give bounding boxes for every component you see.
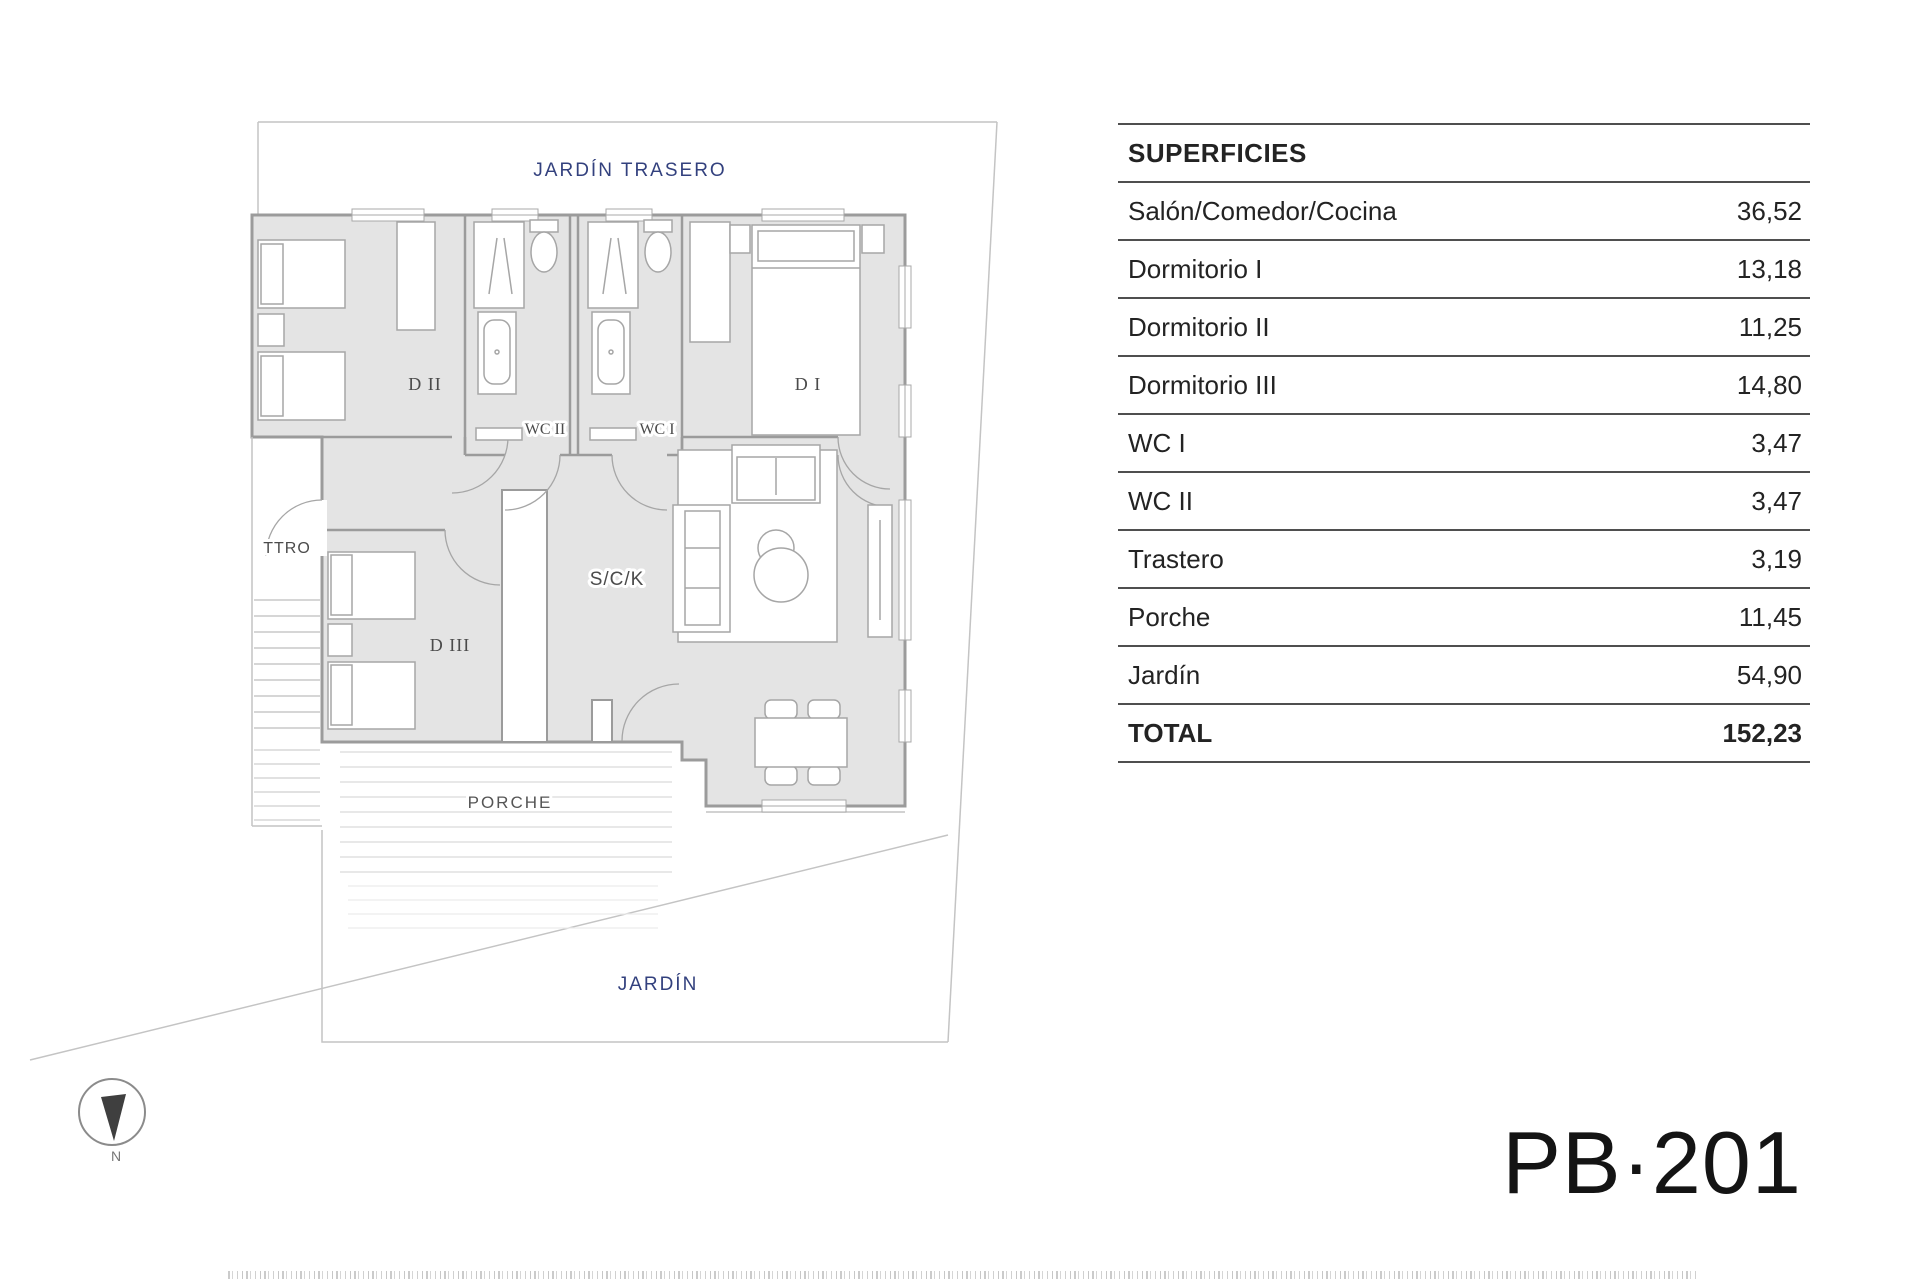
room-label-sck: S/C/K xyxy=(590,569,645,590)
table-row: Trastero 3,19 xyxy=(1118,531,1810,589)
row-label: Dormitorio II xyxy=(1128,312,1270,343)
row-value: 3,19 xyxy=(1751,544,1802,575)
row-value: 14,80 xyxy=(1737,370,1802,401)
porch-label: PORCHE xyxy=(468,793,553,812)
row-value: 11,25 xyxy=(1739,312,1802,343)
row-value: 11,45 xyxy=(1739,602,1802,633)
row-label: WC II xyxy=(1128,486,1193,517)
porch-decking-hatch xyxy=(340,752,672,872)
room-label-trastero: TTRO xyxy=(263,540,311,557)
back-garden-label: JARDÍN TRASERO xyxy=(533,160,726,181)
row-value: 3,47 xyxy=(1751,428,1802,459)
garden-label: JARDÍN xyxy=(618,974,699,995)
total-label: TOTAL xyxy=(1128,718,1212,749)
row-label: WC I xyxy=(1128,428,1186,459)
table-row: WC II 3,47 xyxy=(1118,473,1810,531)
plan-code: PB·201 xyxy=(1462,1112,1842,1214)
row-label: Salón/Comedor/Cocina xyxy=(1128,196,1397,227)
room-label-d1: D I xyxy=(795,374,822,394)
table-row: Dormitorio II 11,25 xyxy=(1118,299,1810,357)
row-label: Trastero xyxy=(1128,544,1224,575)
floor-plan-drawing: JARDÍN TRASERO TTRO D II WC II WC I D I … xyxy=(0,0,1100,1280)
total-value: 152,23 xyxy=(1722,718,1802,749)
row-value: 3,47 xyxy=(1751,486,1802,517)
room-label-wc2: WC II xyxy=(525,421,565,438)
ttro-stairs xyxy=(252,437,322,826)
table-row: Jardín 54,90 xyxy=(1118,647,1810,705)
room-label-d3: D III xyxy=(430,635,470,655)
table-total-row: TOTAL 152,23 xyxy=(1118,705,1810,763)
entry-wall-stub xyxy=(592,700,612,742)
row-value: 54,90 xyxy=(1737,660,1802,691)
row-label: Dormitorio I xyxy=(1128,254,1262,285)
table-row: WC I 3,47 xyxy=(1118,415,1810,473)
surfaces-table: SUPERFICIES Salón/Comedor/Cocina 36,52 D… xyxy=(1118,123,1810,763)
table-row: Salón/Comedor/Cocina 36,52 xyxy=(1118,183,1810,241)
row-value: 13,18 xyxy=(1737,254,1802,285)
row-label: Jardín xyxy=(1128,660,1200,691)
table-row: Dormitorio III 14,80 xyxy=(1118,357,1810,415)
room-label-d2: D II xyxy=(408,374,442,394)
row-label: Dormitorio III xyxy=(1128,370,1277,401)
table-row: Dormitorio I 13,18 xyxy=(1118,241,1810,299)
row-label: Porche xyxy=(1128,602,1210,633)
surfaces-table-title: SUPERFICIES xyxy=(1118,125,1810,183)
corridor-wall-band xyxy=(502,490,547,742)
row-value: 36,52 xyxy=(1737,196,1802,227)
clipped-footer-text xyxy=(228,1271,1700,1279)
floorplan-sheet: JARDÍN TRASERO TTRO D II WC II WC I D I … xyxy=(0,0,1920,1280)
compass-north-label: N xyxy=(111,1148,121,1164)
compass-north-icon: N xyxy=(79,1079,145,1164)
ttro-door-gap xyxy=(317,500,327,556)
room-label-wc1: WC I xyxy=(639,421,674,438)
porch-step-hatch xyxy=(348,886,658,928)
table-row: Porche 11,45 xyxy=(1118,589,1810,647)
